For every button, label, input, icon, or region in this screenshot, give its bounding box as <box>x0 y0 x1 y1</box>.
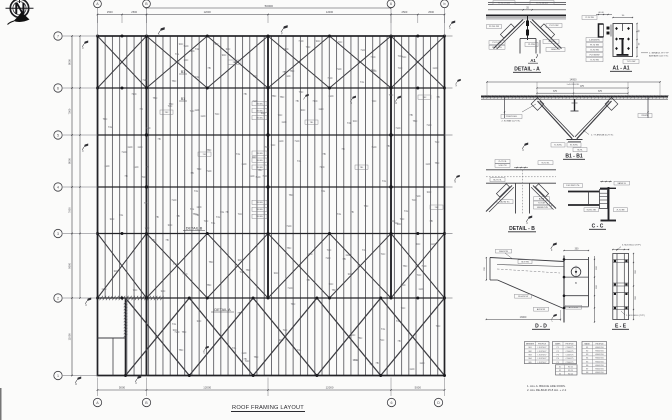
svg-text:H300X150: H300X150 <box>595 361 604 363</box>
svg-text:13000: 13000 <box>520 316 527 319</box>
svg-text:74L: 74L <box>195 47 200 51</box>
svg-text:7B: 7B <box>295 99 298 103</box>
svg-text:B1: B1 <box>586 347 588 349</box>
svg-text:MEMBER: MEMBER <box>526 343 535 345</box>
svg-text:6. M20 B0L0 (TYP): 6. M20 B0L0 (TYP) <box>622 245 641 247</box>
svg-text:5000: 5000 <box>415 386 422 390</box>
svg-text:7B: 7B <box>237 311 240 315</box>
svg-text:7B: 7B <box>342 257 345 261</box>
svg-text:1/40 7W: 1/40 7W <box>498 165 507 167</box>
svg-text:L70X70X7: L70X70X7 <box>538 362 547 364</box>
svg-text:B: B <box>575 281 577 285</box>
svg-text:34C: 34C <box>179 42 184 46</box>
svg-text:C200X75: C200X75 <box>566 351 574 353</box>
svg-text:78C: 78C <box>289 193 294 197</box>
svg-text:74L: 74L <box>172 322 177 326</box>
svg-text:PL70 9W: PL70 9W <box>550 25 560 27</box>
svg-text:34C: 34C <box>222 53 227 57</box>
svg-text:7HC: 7HC <box>262 174 267 178</box>
svg-text:2500: 2500 <box>428 10 434 14</box>
svg-text:10B0L/TZ: 10B0L/TZ <box>551 49 561 51</box>
svg-text:1HC: 1HC <box>104 164 109 168</box>
svg-text:12000: 12000 <box>204 10 212 14</box>
svg-text:34C: 34C <box>329 282 334 286</box>
svg-text:1HC: 1HC <box>371 69 376 73</box>
svg-text:34C: 34C <box>168 223 173 227</box>
svg-text:2. TY AN9 AB 0L2Y 9C: 2. TY AN9 AB 0L2Y 9C <box>591 134 614 137</box>
svg-text:1HC: 1HC <box>328 94 333 98</box>
svg-text:B2: B2 <box>586 351 588 353</box>
svg-text:7B 08L: 7B 08L <box>256 117 264 119</box>
svg-text:7B 08L: 7B 08L <box>256 153 264 155</box>
svg-text:34C: 34C <box>271 143 276 147</box>
svg-text:7B: 7B <box>225 210 228 214</box>
svg-text:9000: 9000 <box>68 262 72 268</box>
svg-text:1HC: 1HC <box>281 120 286 124</box>
svg-text:74C: 74C <box>394 221 399 225</box>
svg-text:7L9 0E: 7L9 0E <box>538 203 545 205</box>
svg-text:74C: 74C <box>215 112 220 116</box>
svg-text:34C: 34C <box>353 119 358 123</box>
svg-text:7B: 7B <box>207 66 210 70</box>
svg-text:C: C <box>522 149 524 152</box>
svg-text:A09E: A09E <box>539 197 545 200</box>
svg-text:7B: 7B <box>282 70 285 74</box>
svg-text:5000: 5000 <box>119 386 126 390</box>
svg-text:74L: 74L <box>347 121 352 125</box>
svg-text:74C: 74C <box>142 175 147 179</box>
svg-text:78C: 78C <box>287 246 292 250</box>
svg-text:MARK: MARK <box>555 342 561 345</box>
svg-text:78C: 78C <box>332 288 337 292</box>
svg-text:74C: 74C <box>283 328 288 332</box>
svg-text:7HC: 7HC <box>287 286 292 290</box>
svg-text:7B: 7B <box>341 147 344 151</box>
svg-text:74C: 74C <box>381 252 386 256</box>
svg-text:E - E: E - E <box>615 324 627 330</box>
svg-text:78C: 78C <box>153 96 158 100</box>
svg-text:1HC: 1HC <box>189 49 194 53</box>
svg-text:78C: 78C <box>207 148 212 152</box>
svg-text:DETAIL A: DETAIL A <box>214 308 231 312</box>
svg-text:7HC: 7HC <box>415 194 420 198</box>
svg-text:7000: 7000 <box>68 207 72 213</box>
svg-text:74L: 74L <box>211 221 216 225</box>
svg-text:34C: 34C <box>427 190 432 194</box>
svg-text:78C: 78C <box>169 102 174 106</box>
svg-text:D: D <box>350 102 352 105</box>
svg-text:78C: 78C <box>246 268 251 272</box>
svg-text:74L: 74L <box>297 348 302 352</box>
svg-text:RD 25: RD 25 <box>568 370 573 372</box>
svg-text:50000: 50000 <box>265 4 274 8</box>
svg-text:78C: 78C <box>254 355 259 359</box>
svg-text:3: 3 <box>57 232 59 236</box>
svg-text:2/90X9 B0L: 2/90X9 B0L <box>506 116 518 118</box>
svg-text:9L/70 9L: 9L/70 9L <box>493 179 502 181</box>
svg-text:D: D <box>395 102 397 105</box>
svg-text:1HC: 1HC <box>432 66 437 70</box>
svg-text:1HC: 1HC <box>200 114 205 118</box>
svg-text:34C: 34C <box>274 271 279 275</box>
svg-text:34C: 34C <box>348 272 353 276</box>
svg-text:C: C <box>135 382 137 385</box>
svg-text:7B: 7B <box>151 238 154 242</box>
svg-text:H300X150: H300X150 <box>595 365 604 367</box>
svg-text:2500: 2500 <box>402 10 408 14</box>
svg-text:8000: 8000 <box>68 158 72 164</box>
svg-text:2. ALL RE-BAR 25.8 HA. + 2.2: 2. ALL RE-BAR 25.8 HA. + 2.2 <box>527 388 567 392</box>
svg-text:0R0ML7ZE: 0R0ML7ZE <box>537 207 549 209</box>
svg-text:7B: 7B <box>176 214 179 218</box>
svg-text:7HC: 7HC <box>255 175 260 179</box>
svg-text:6: 6 <box>391 401 393 405</box>
svg-text:9L70 9L: 9L70 9L <box>542 162 551 164</box>
svg-text:7B: 7B <box>409 113 412 117</box>
svg-text:34C: 34C <box>252 155 257 159</box>
svg-text:78C: 78C <box>209 260 214 264</box>
svg-text:7B: 7B <box>429 219 432 223</box>
svg-text:H300X150: H300X150 <box>595 372 604 374</box>
svg-text:H300X150: H300X150 <box>595 351 604 353</box>
svg-text:RD 25: RD 25 <box>568 367 573 369</box>
svg-text:74C: 74C <box>253 74 258 78</box>
svg-text:P1: P1 <box>557 347 559 349</box>
svg-text:74C: 74C <box>145 226 150 230</box>
svg-text:1HC: 1HC <box>278 139 283 143</box>
svg-text:PL70 4B/3W: PL70 4B/3W <box>536 2 549 4</box>
svg-text:34C: 34C <box>316 39 321 43</box>
svg-text:PL70 9W: PL70 9W <box>590 44 600 46</box>
svg-text:7HC: 7HC <box>142 78 147 82</box>
svg-text:74C: 74C <box>238 212 243 216</box>
svg-text:74L: 74L <box>396 319 401 323</box>
svg-text:C - C: C - C <box>592 224 604 230</box>
svg-text:9AN9 9L: 9AN9 9L <box>618 182 627 185</box>
svg-text:7L70 9W: 7L70 9W <box>627 61 637 63</box>
svg-text:74C: 74C <box>278 113 283 117</box>
svg-text:2: 2 <box>57 296 59 300</box>
svg-text:78C: 78C <box>272 94 277 98</box>
svg-text:7HC: 7HC <box>312 99 317 103</box>
svg-text:78C: 78C <box>403 264 408 268</box>
svg-text:1HC: 1HC <box>101 287 106 291</box>
svg-text:7L70 9W: 7L70 9W <box>590 49 600 51</box>
svg-text:7B: 7B <box>157 137 160 141</box>
svg-text:7HC: 7HC <box>294 139 299 143</box>
svg-text:74C: 74C <box>417 273 422 277</box>
svg-text:9B2: 9B2 <box>528 351 531 353</box>
svg-text:C200X75: C200X75 <box>566 358 574 360</box>
svg-text:MARK: MARK <box>584 342 590 345</box>
svg-text:7HC: 7HC <box>174 330 179 334</box>
svg-text:78C: 78C <box>435 161 440 165</box>
svg-text:1HC: 1HC <box>419 361 424 365</box>
svg-text:7B 08L: 7B 08L <box>256 160 264 162</box>
svg-text:74C: 74C <box>380 338 385 342</box>
svg-text:5: 5 <box>57 133 59 137</box>
svg-text:7B: 7B <box>350 210 353 214</box>
svg-text:2/3W9L: 2/3W9L <box>641 115 649 117</box>
svg-text:7HC: 7HC <box>206 169 211 173</box>
svg-text:9B5: 9B5 <box>528 362 531 364</box>
svg-text:9L70/9L: 9L70/9L <box>570 145 579 147</box>
svg-text:PROFILE: PROFILE <box>595 343 604 345</box>
svg-text:7B: 7B <box>165 238 168 242</box>
svg-text:9L/9L: 9L/9L <box>577 149 583 151</box>
svg-text:74L: 74L <box>190 207 195 211</box>
svg-text:7B 08L: 7B 08L <box>256 216 264 218</box>
svg-text:7B: 7B <box>190 171 193 175</box>
svg-text:74C: 74C <box>389 93 394 97</box>
svg-text:B8: B8 <box>586 372 588 374</box>
svg-text:AN9/AB9 0L21Y 9C: AN9/AB9 0L21Y 9C <box>649 54 669 57</box>
svg-text:78C: 78C <box>299 90 304 94</box>
svg-text:74L: 74L <box>216 215 221 219</box>
svg-text:7HC: 7HC <box>286 224 291 228</box>
svg-text:74C: 74C <box>398 66 403 70</box>
svg-text:74L: 74L <box>404 209 409 213</box>
svg-text:74C: 74C <box>204 219 209 223</box>
svg-text:8000: 8000 <box>68 59 72 65</box>
svg-text:L70X70X7: L70X70X7 <box>538 355 547 357</box>
svg-text:34C: 34C <box>238 258 243 262</box>
svg-text:C: C <box>85 304 87 307</box>
svg-text:74L: 74L <box>195 75 200 79</box>
svg-text:7L70 9W: 7L70 9W <box>585 17 595 19</box>
svg-text:2. M20 B0L0 (TYP): 2. M20 B0L0 (TYP) <box>626 315 645 317</box>
svg-text:34C: 34C <box>161 289 166 293</box>
svg-text:34C: 34C <box>226 47 231 51</box>
svg-text:1HC: 1HC <box>345 253 350 257</box>
svg-text:7L70 9W: 7L70 9W <box>590 59 600 61</box>
svg-text:74L: 74L <box>108 125 113 129</box>
svg-text:7B 08L: 7B 08L <box>256 209 264 211</box>
svg-text:H300X150: H300X150 <box>595 369 604 371</box>
svg-text:7B 08L: 7B 08L <box>256 103 264 105</box>
svg-text:2500: 2500 <box>107 10 113 14</box>
svg-text:7HC: 7HC <box>121 150 126 154</box>
svg-text:2-M20B/9C: 2-M20B/9C <box>589 39 600 41</box>
svg-text:1/43 9R/2.75L: 1/43 9R/2.75L <box>566 185 581 187</box>
svg-text:1HC: 1HC <box>285 74 290 78</box>
svg-text:D: D <box>437 401 440 405</box>
svg-text:1HC: 1HC <box>418 287 423 291</box>
svg-text:74L: 74L <box>297 159 302 163</box>
svg-text:PL70 9OL: PL70 9OL <box>492 47 503 49</box>
svg-text:12000: 12000 <box>203 386 211 390</box>
svg-text:F: F <box>281 32 283 36</box>
svg-text:2500: 2500 <box>131 10 137 14</box>
svg-text:B1 - B1: B1 - B1 <box>565 154 582 160</box>
svg-text:X3: X3 <box>559 373 561 375</box>
svg-text:74C: 74C <box>327 248 332 252</box>
svg-text:C200X75: C200X75 <box>566 362 574 364</box>
svg-text:1HC: 1HC <box>425 162 430 166</box>
svg-text:7HC: 7HC <box>421 264 426 268</box>
svg-text:7B: 7B <box>369 362 372 366</box>
svg-text:1HC: 1HC <box>194 108 199 112</box>
svg-text:34C: 34C <box>110 217 115 221</box>
svg-text:7B: 7B <box>397 339 400 343</box>
svg-text:74L: 74L <box>173 262 178 266</box>
svg-text:74L: 74L <box>362 248 367 252</box>
svg-text:7HC: 7HC <box>400 283 405 287</box>
svg-text:74C: 74C <box>265 145 270 149</box>
svg-text:78C: 78C <box>358 336 363 340</box>
svg-text:7L70/9L: 7L70/9L <box>554 145 563 147</box>
svg-text:F: F <box>158 34 160 38</box>
svg-text:74L: 74L <box>381 327 386 331</box>
svg-text:7HC: 7HC <box>426 123 431 127</box>
svg-text:78C: 78C <box>436 324 441 328</box>
svg-text:74L: 74L <box>232 346 237 350</box>
svg-text:78C: 78C <box>207 283 212 287</box>
svg-text:A/23CW: A/23CW <box>537 308 546 311</box>
svg-text:7B: 7B <box>139 107 142 111</box>
svg-text:74C: 74C <box>338 40 343 44</box>
svg-text:9B4: 9B4 <box>528 358 531 360</box>
svg-text:7HC: 7HC <box>298 39 303 43</box>
svg-text:X1: X1 <box>559 367 561 369</box>
svg-text:7HC: 7HC <box>174 60 179 64</box>
svg-text:B1: B1 <box>181 70 185 74</box>
svg-text:H300X150: H300X150 <box>595 354 604 356</box>
svg-text:11000: 11000 <box>68 333 72 341</box>
svg-text:78C: 78C <box>364 204 369 208</box>
svg-text:74C: 74C <box>434 207 438 209</box>
svg-text:b: b <box>444 2 446 6</box>
svg-text:7HC: 7HC <box>327 76 332 80</box>
svg-text:78C: 78C <box>280 95 285 99</box>
svg-text:7B: 7B <box>195 213 198 217</box>
svg-text:X2: X2 <box>559 370 561 372</box>
svg-text:34C: 34C <box>301 108 306 112</box>
svg-text:78C: 78C <box>103 117 108 121</box>
svg-text:1HC: 1HC <box>127 145 132 149</box>
svg-text:1344/3CW: 1344/3CW <box>518 296 529 298</box>
svg-text:1. ALL A. BRACE ARE RODS.: 1. ALL A. BRACE ARE RODS. <box>527 384 566 388</box>
svg-text:7B: 7B <box>243 357 246 361</box>
svg-text:DETAIL B: DETAIL B <box>186 227 203 231</box>
svg-text:12000: 12000 <box>326 386 334 390</box>
svg-text:P4: P4 <box>557 358 559 360</box>
svg-text:B4: B4 <box>586 358 588 360</box>
svg-text:74L: 74L <box>337 212 342 216</box>
svg-text:1HC: 1HC <box>241 351 246 355</box>
svg-text:78C: 78C <box>306 45 311 49</box>
svg-text:4: 4 <box>57 185 59 189</box>
svg-text:7B: 7B <box>243 92 246 96</box>
svg-text:74L: 74L <box>321 189 326 193</box>
svg-text:74C: 74C <box>202 154 206 156</box>
svg-text:PROFILE: PROFILE <box>538 343 547 345</box>
svg-text:C200X75: C200X75 <box>566 347 574 349</box>
svg-text:74C: 74C <box>412 198 417 202</box>
svg-text:34C: 34C <box>197 319 202 323</box>
svg-text:1HC: 1HC <box>249 174 254 178</box>
svg-text:74L: 74L <box>382 179 387 183</box>
svg-text:1HC: 1HC <box>283 47 288 51</box>
svg-text:40 40: 40 40 <box>598 12 604 14</box>
svg-text:P5: P5 <box>557 362 559 364</box>
svg-text:78C: 78C <box>182 330 187 334</box>
svg-text:B3: B3 <box>586 354 588 356</box>
svg-text:78C: 78C <box>164 112 168 114</box>
svg-text:7B: 7B <box>145 165 148 169</box>
svg-text:7B 08L: 7B 08L <box>256 202 264 204</box>
svg-text:7B 08L: 7B 08L <box>256 167 264 169</box>
svg-text:1HC: 1HC <box>196 205 201 209</box>
svg-text:2. 9L/9AB 0L2Y 9C: 2. 9L/9AB 0L2Y 9C <box>502 120 521 123</box>
svg-text:C200X75: C200X75 <box>566 355 574 357</box>
svg-text:7HC: 7HC <box>182 272 187 276</box>
svg-text:74L: 74L <box>354 358 359 362</box>
svg-text:B5: B5 <box>586 361 588 363</box>
svg-text:RD 25: RD 25 <box>568 373 573 375</box>
svg-text:1HC: 1HC <box>133 165 138 169</box>
svg-text:7HC: 7HC <box>336 67 341 71</box>
svg-text:PL/9W: PL/9W <box>528 44 536 46</box>
svg-text:7B: 7B <box>375 361 378 365</box>
svg-text:7HC: 7HC <box>325 256 330 260</box>
svg-text:PL250 2W: PL250 2W <box>489 26 500 28</box>
svg-text:74L: 74L <box>220 210 225 214</box>
svg-text:7HC: 7HC <box>131 92 136 96</box>
svg-text:7: 7 <box>57 34 59 38</box>
svg-text:7L70 9E: 7L70 9E <box>616 209 625 211</box>
svg-text:74C: 74C <box>401 306 406 310</box>
svg-text:34C: 34C <box>351 333 356 337</box>
svg-text:78C: 78C <box>172 79 177 83</box>
svg-text:14950: 14950 <box>570 79 578 82</box>
svg-text:1HC: 1HC <box>307 252 312 256</box>
svg-text:78C: 78C <box>290 69 295 73</box>
svg-text:74L: 74L <box>236 152 241 156</box>
svg-text:9L/9C 9B: 9L/9C 9B <box>587 209 597 211</box>
svg-text:7L/70 9L: 7L/70 9L <box>498 161 507 163</box>
svg-text:7B 08L: 7B 08L <box>256 110 264 112</box>
svg-text:34C: 34C <box>416 242 421 246</box>
svg-text:78C: 78C <box>291 302 296 306</box>
svg-text:74L: 74L <box>360 80 365 84</box>
svg-text:7B: 7B <box>322 152 325 156</box>
svg-text:6: 6 <box>390 2 392 6</box>
svg-text:12000: 12000 <box>326 10 334 14</box>
svg-text:7HC: 7HC <box>319 165 324 169</box>
svg-text:DIA 3CW: DIA 3CW <box>499 250 509 253</box>
svg-text:74L: 74L <box>144 201 149 205</box>
svg-text:34C: 34C <box>114 269 119 273</box>
svg-text:7HC: 7HC <box>213 42 218 46</box>
svg-text:DETAIL - A: DETAIL - A <box>514 67 540 73</box>
svg-text:78C: 78C <box>179 348 184 352</box>
svg-text:1: 1 <box>57 374 59 378</box>
svg-text:9B1: 9B1 <box>528 347 531 349</box>
svg-text:9OL6: 9OL6 <box>548 41 554 43</box>
svg-text:L70X70X7: L70X70X7 <box>538 351 547 353</box>
svg-text:7B: 7B <box>436 95 439 99</box>
svg-text:7B: 7B <box>306 278 309 282</box>
svg-text:PL9 B/9W: PL9 B/9W <box>590 54 601 56</box>
svg-text:H300X150: H300X150 <box>595 358 604 360</box>
svg-text:74C: 74C <box>133 288 138 292</box>
svg-text:1HC: 1HC <box>137 145 142 149</box>
svg-text:74L: 74L <box>119 213 124 217</box>
svg-text:78C: 78C <box>413 119 418 123</box>
svg-text:B6: B6 <box>586 365 588 367</box>
svg-text:7HC: 7HC <box>183 44 188 48</box>
